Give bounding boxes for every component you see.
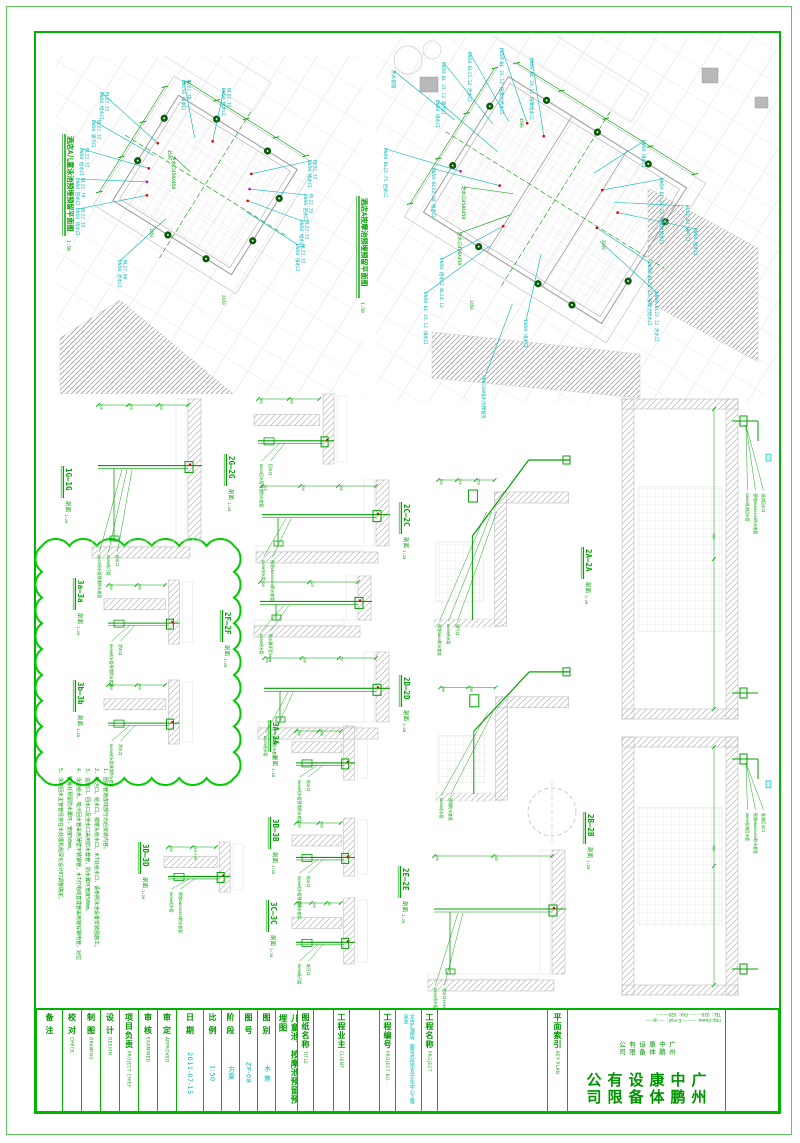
svg-text:DN50 BL23.12 按摩池给水口: DN50 BL23.12 按摩池给水口 — [646, 262, 653, 326]
field-sublabel: EXAMINED — [146, 1037, 151, 1062]
svg-text:300: 300 — [259, 398, 263, 404]
svg-text:剖面: 剖面 — [227, 489, 235, 501]
svg-text:3A—3A: 3A—3A — [271, 722, 280, 745]
svg-text:400: 400 — [137, 584, 141, 590]
svg-text:1:20: 1:20 — [269, 948, 274, 958]
svg-text:785: 785 — [712, 845, 716, 851]
svg-text:溢流回水口: 溢流回水口 — [761, 493, 766, 512]
section-title: 3a—3a剖面1:20 — [73, 578, 85, 636]
svg-text:剖面: 剖面 — [402, 710, 410, 722]
svg-text:2F—2F: 2F—2F — [223, 612, 232, 635]
empty-cell — [314, 1010, 334, 1111]
svg-text:220: 220 — [99, 404, 103, 410]
svg-text:4500: 4500 — [167, 150, 172, 160]
svg-text:950: 950 — [477, 479, 481, 485]
svg-text:DN50 BL22.75 回水口: DN50 BL22.75 回水口 — [382, 148, 389, 198]
field-value: ZP-08 — [245, 1062, 253, 1083]
field-label: 平面索引 — [552, 1013, 563, 1049]
svg-text:DN50 给水口: DN50 给水口 — [692, 228, 699, 256]
field-label: 工程名称 — [424, 1013, 435, 1049]
svg-text:剖面: 剖面 — [269, 935, 277, 947]
field-label: 制 图 — [86, 1013, 97, 1035]
company-cell: http://www.············ E-mail：······@··… — [568, 1010, 726, 1111]
field-cell: 工程业主CLIENT — [334, 1010, 350, 1111]
svg-text:3B—3B: 3B—3B — [271, 819, 280, 842]
field-sublabel: KEY PLAN — [555, 1051, 560, 1074]
svg-text:给水口: 给水口 — [306, 876, 311, 888]
svg-text:150: 150 — [297, 822, 301, 828]
section-title: 1G—1G剖面1:20 — [61, 466, 73, 524]
svg-text:DN50溢流回水管: DN50溢流回水管 — [745, 813, 750, 841]
field-label: 审 核 — [143, 1013, 154, 1035]
title-block: 备 注校 对CHECK制 图DRAWING设 计DESIGN项目负责PROJEC… — [35, 1008, 780, 1113]
svg-text:预埋DN80X450防水套管: 预埋DN80X450防水套管 — [753, 493, 758, 534]
svg-text:1450: 1450 — [469, 300, 474, 310]
svg-text:泄水口: 泄水口 — [118, 744, 123, 756]
svg-text:5. 泳池回水主管管径将在水处理机组深化设计时调整确定。: 5. 泳池回水主管管径将在水处理机组深化设计时调整确定。 — [57, 768, 64, 902]
field-cell: 比 例1:50 — [204, 1010, 222, 1111]
svg-text:剖面: 剖面 — [64, 501, 72, 513]
svg-text:3. 溢流口、回水口及泄水口采用防水套管，防水翼环宽度50m: 3. 溢流口、回水口及泄水口采用防水套管，防水翼环宽度50mm。 — [84, 768, 91, 914]
svg-text:1:20: 1:20 — [271, 865, 276, 875]
svg-text:400: 400 — [137, 684, 141, 690]
svg-text:预埋DN80X450防水套管: 预埋DN80X450防水套管 — [178, 892, 183, 933]
field-sublabel: TITLE — [303, 1051, 308, 1064]
field-cell: 阶 段方案 — [222, 1010, 240, 1111]
svg-text:2B—2B: 2B—2B — [586, 814, 595, 837]
section-title: 2A—2A剖面1:20 — [581, 547, 593, 605]
svg-text:50: 50 — [327, 902, 331, 906]
field-value: 方案 — [226, 1066, 236, 1080]
field-sublabel: PROJECT NO. — [385, 1051, 390, 1082]
svg-text:1:20: 1:20 — [227, 502, 232, 512]
field-sublabel: APPROVED — [165, 1037, 170, 1063]
svg-text:预埋DN80X450防水套管: 预埋DN80X450防水套管 — [753, 813, 758, 854]
svg-text:4. 泳池给水、吸污回水管采用薄壁不锈钢管，水T灯电线直埋管: 4. 泳池给水、吸污回水管采用薄壁不锈钢管，水T灯电线直埋管采用镀锌钢电管，对拉 — [75, 768, 82, 960]
field-cell: 备 注 — [37, 1010, 63, 1111]
field-label: 图纸名称 — [300, 1013, 311, 1049]
svg-text:250: 250 — [129, 404, 133, 410]
svg-text:300: 300 — [265, 657, 269, 663]
svg-text:400: 400 — [319, 730, 323, 736]
svg-text:300: 300 — [439, 479, 443, 485]
svg-text:3D—3D: 3D—3D — [141, 844, 150, 867]
section-title: 2B—2B剖面1:20 — [583, 812, 595, 870]
svg-text:DN150排水沟预留孔: DN150排水沟预留孔 — [480, 378, 487, 420]
svg-text:DN50 BL23.10 给水口: DN50 BL23.10 给水口 — [430, 168, 437, 218]
svg-text:1:20: 1:20 — [64, 514, 69, 524]
svg-text:300: 300 — [109, 684, 113, 690]
svg-text:300: 300 — [261, 581, 265, 587]
svg-text:DN50 排水口: DN50 排水口 — [640, 140, 647, 168]
section-title: 3b—3b剖面1:20 — [73, 680, 85, 738]
svg-text:DN50 BL 23.12 按摩给水口: DN50 BL 23.12 按摩给水口 — [528, 58, 535, 120]
section-2F—2F: 300120DN50给水管防水翼环宽50mm2F—2F剖面1:20 — [220, 576, 372, 668]
section-2G—2G: 300100DN25回水管预埋防水套管回水口2G—2G剖面1:20 — [224, 394, 347, 512]
svg-text:400: 400 — [169, 846, 173, 852]
svg-text:100: 100 — [312, 902, 316, 908]
svg-text:BL22.32: BL22.32 — [104, 92, 110, 112]
field-value: 1:50 — [209, 1065, 217, 1082]
svg-text:DN50 BL 23.12 吸污口: DN50 BL 23.12 吸污口 — [440, 62, 447, 115]
svg-text:BL22.32: BL22.32 — [226, 88, 232, 108]
svg-text:泄水口450X450: 泄水口450X450 — [456, 232, 463, 265]
svg-text:200: 200 — [435, 855, 439, 861]
svg-text:2G—2G: 2G—2G — [227, 456, 236, 479]
svg-text:2050: 2050 — [601, 240, 606, 250]
svg-text:1450: 1450 — [149, 228, 154, 238]
svg-text:溢流回水口: 溢流回水口 — [761, 813, 766, 832]
field-value: 2011-07-15 — [186, 1052, 194, 1095]
svg-text:120: 120 — [310, 581, 314, 587]
field-cell: 图 号ZP-08 — [240, 1010, 258, 1111]
svg-text:300: 300 — [109, 584, 113, 590]
section-2C—2C: 750100100DN50排水管预埋DN80X450防水套管2C—2C剖面1:2… — [256, 480, 411, 601]
section-title: 3B—3B剖面1:20 — [268, 817, 280, 875]
keyplan-box — [438, 1010, 548, 1111]
svg-text:DN50给水管预埋防水套管: DN50给水管预埋防水套管 — [297, 876, 302, 920]
field-label: 设 计 — [105, 1013, 116, 1035]
svg-text:泄水口: 泄水口 — [118, 644, 123, 656]
svg-text:给水口: 给水口 — [115, 555, 120, 567]
svg-text:1:20: 1:20 — [223, 658, 228, 668]
company-contact: http://www.············ E-mail：······@··… — [570, 1010, 723, 1025]
svg-text:785: 785 — [712, 533, 716, 539]
svg-text:BL22.32: BL22.32 — [300, 244, 306, 264]
svg-text:BL22.32: BL22.32 — [84, 148, 90, 168]
section-detail: 300200DN50给水管预埋防水套管 — [436, 668, 570, 821]
svg-text:300: 300 — [297, 902, 301, 908]
svg-text:1:20: 1:20 — [141, 890, 146, 900]
svg-text:150: 150 — [297, 730, 301, 736]
section-title: 2F—2F剖面1:20 — [220, 610, 232, 668]
section-detail: 785DN50溢流回水管预埋DN80X450防水套管溢流回水口 — [622, 399, 771, 719]
svg-text:150: 150 — [458, 479, 462, 485]
svg-text:1:50: 1:50 — [359, 302, 365, 313]
svg-text:BL22.70: BL22.70 — [80, 178, 86, 198]
svg-text:2E—2E: 2E—2E — [401, 868, 410, 891]
field-cell: 审 定APPROVED — [158, 1010, 177, 1111]
svg-text:100: 100 — [494, 855, 498, 861]
field-label: 工程编号 — [382, 1013, 393, 1049]
svg-text:50: 50 — [340, 657, 344, 661]
cad-linework-canvas: DN50 给水口BL22.32DN150 排水口BL22.30DN50 给水口B… — [0, 0, 800, 1143]
svg-text:2C—2C: 2C—2C — [402, 504, 411, 527]
svg-text:剖面: 剖面 — [141, 877, 149, 889]
svg-text:DN50排水管: DN50排水管 — [433, 988, 438, 1009]
field-sublabel: DRAWING — [89, 1037, 94, 1060]
svg-text:DN50给水管: DN50给水管 — [446, 624, 451, 645]
svg-text:预埋防水套管: 预埋防水套管 — [448, 798, 453, 821]
svg-text:1:20: 1:20 — [76, 626, 81, 636]
svg-text:DN50 排水口: DN50 排水口 — [522, 320, 529, 348]
company-name: 广州中鹏康体设备有限公司 — [584, 1072, 710, 1106]
svg-text:热水管道: 热水管道 — [390, 70, 397, 89]
drawing-sheet: DN50 给水口BL22.32DN150 排水口BL22.30DN50 给水口B… — [0, 0, 800, 1143]
section-title: 3C—3C剖面1:20 — [266, 900, 278, 958]
company-name-small: 广州中鹏康体设备有限公司 — [617, 1041, 677, 1056]
field-sublabel: PROJECT CHIEF — [127, 1051, 132, 1088]
drawing-title-cell: 儿童池、按摩池预留预埋图 — [276, 1010, 298, 1111]
svg-text:100: 100 — [290, 398, 294, 404]
project-name-text: 太古汇酒店、服务式住宅及文化中心工程泳池 — [402, 1014, 415, 1107]
svg-text:回水口: 回水口 — [268, 464, 273, 476]
svg-text:剖面: 剖面 — [401, 901, 409, 913]
svg-text:剖面: 剖面 — [76, 715, 84, 727]
general-notes: 1. 图中管道虚线部分为后安装内容。2. 吸污口、给水口、按摩头给水口、水T处给… — [57, 768, 109, 960]
svg-text:DN50排水管: DN50排水管 — [261, 560, 266, 581]
field-cell: 设 计DESIGN — [101, 1010, 120, 1111]
svg-text:2D—2D: 2D—2D — [402, 677, 411, 700]
section-title: 2C—2C剖面1:20 — [399, 502, 411, 560]
field-cell: 图 别水 施 — [258, 1010, 276, 1111]
svg-text:剖面: 剖面 — [271, 852, 279, 864]
field-label: 审 定 — [162, 1013, 173, 1035]
project-name-cell: 太古汇酒店、服务式住宅及文化中心工程泳池 — [396, 1010, 422, 1111]
svg-text:DN50 BL23.12 泄水口: DN50 BL23.12 泄水口 — [653, 292, 660, 342]
section-title: 2E—2E剖面1:20 — [398, 866, 410, 924]
field-label: 备 注 — [44, 1013, 55, 1035]
svg-text:预埋DN80X450防水套管: 预埋DN80X450防水套管 — [270, 560, 275, 601]
svg-text:DN50给水管: DN50给水管 — [259, 634, 264, 655]
section-2B—2B: 785DN50溢流回水管预埋DN80X450防水套管溢流回水口2B—2B剖面1:… — [583, 737, 771, 995]
field-cell: 工程名称PROJECT — [422, 1010, 438, 1111]
svg-text:1:20: 1:20 — [76, 728, 81, 738]
svg-text:DN50吸污管: DN50吸污管 — [106, 555, 111, 576]
svg-text:1:20: 1:20 — [401, 914, 406, 924]
empty-cell — [350, 1010, 380, 1111]
svg-text:BL21.67 通气口: BL21.67 通气口 — [684, 205, 691, 241]
field-sublabel: CHECK — [70, 1037, 75, 1053]
svg-text:100: 100 — [301, 485, 305, 491]
svg-text:1G—1G: 1G—1G — [64, 468, 73, 491]
svg-text:酒店A按摩池预埋预留平面图: 酒店A按摩池预埋预留平面图 — [360, 198, 369, 286]
field-label: 比 例 — [207, 1013, 218, 1035]
section-3D—3D: 400250~100DN50给水管预埋DN80X450防水套管3D—3D剖面1:… — [138, 842, 243, 933]
field-label: 日 期 — [185, 1013, 196, 1035]
svg-text:泄水口450X450: 泄水口450X450 — [170, 156, 177, 189]
svg-text:1. 图中管道虚线部分为后安装内容。: 1. 图中管道虚线部分为后安装内容。 — [102, 768, 109, 852]
svg-text:泄水口450X450: 泄水口450X450 — [460, 186, 467, 219]
svg-text:3C—3C: 3C—3C — [269, 902, 278, 925]
section-3C—3C: 30010050DN50吸污管吸污口3C—3C剖面1:20 — [266, 898, 367, 985]
field-label: 校 对 — [67, 1013, 78, 1035]
svg-text:BL22.35: BL22.35 — [308, 194, 314, 214]
field-sublabel: DESIGN — [108, 1037, 113, 1055]
svg-text:1:20: 1:20 — [584, 595, 589, 605]
svg-text:剖面: 剖面 — [402, 537, 410, 549]
section-title: 2G—2G剖面1:20 — [224, 454, 236, 512]
field-value: 水 施 — [262, 1065, 272, 1082]
field-sublabel: CLIENT — [339, 1051, 344, 1068]
svg-text:DN50给水管预埋防水套管: DN50给水管预埋防水套管 — [109, 744, 114, 788]
section-2E—2E: 200100DN50排水管泄水口450X4502E—2E剖面1:20 — [398, 850, 566, 1016]
field-cell: 校 对CHECK — [63, 1010, 82, 1111]
svg-text:DN50给水管: DN50给水管 — [169, 892, 174, 913]
svg-text:4500: 4500 — [519, 118, 524, 128]
svg-text:剖面: 剖面 — [586, 847, 594, 859]
svg-text:剖面: 剖面 — [223, 645, 231, 657]
svg-text:1:20: 1:20 — [271, 768, 276, 778]
svg-text:BL22.30: BL22.30 — [186, 80, 192, 100]
field-sublabel: PROJECT — [427, 1051, 432, 1072]
svg-text:BL22.60: BL22.60 — [122, 260, 128, 280]
svg-text:1:20: 1:20 — [586, 860, 591, 870]
svg-text:1:20: 1:20 — [402, 723, 407, 733]
svg-text:2. 吸污口、给水口、按摩头给水口、水T处给水口，请参照泳池: 2. 吸污口、给水口、按摩头给水口、水T处给水口，请参照泳池设备安装图施工。 — [93, 768, 100, 950]
svg-text:3a—3a: 3a—3a — [76, 580, 85, 603]
section-1G—1G: 220250300DN25给水管预埋防水套管DN50吸污管给水口1G—1G剖面1… — [61, 399, 202, 599]
field-label: 项目负责 — [124, 1013, 135, 1049]
plan-title: 酒店A按摩池预埋预留平面图1:50 — [356, 196, 369, 313]
svg-text:300: 300 — [441, 686, 445, 692]
svg-text:剖面: 剖面 — [584, 582, 592, 594]
field-label: 图 别 — [261, 1013, 272, 1035]
svg-text:300: 300 — [159, 404, 163, 410]
field-cell: 审 核EXAMINED — [139, 1010, 158, 1111]
svg-text:DN50给水管预埋防水套管: DN50给水管预埋防水套管 — [109, 644, 114, 688]
svg-text:给水口: 给水口 — [306, 780, 311, 792]
section-3b—3b: 300400DN50给水管预埋防水套管泄水口3b—3b剖面1:20 — [73, 680, 192, 788]
svg-text:BL22.32: BL22.32 — [80, 208, 86, 228]
svg-text:BL22.32: BL22.32 — [304, 220, 310, 240]
field-cell: 项目负责PROJECT CHIEF — [120, 1010, 139, 1111]
svg-text:750: 750 — [263, 485, 267, 491]
svg-text:吸污口: 吸污口 — [306, 964, 311, 976]
svg-text:DN50 排水口: DN50 排水口 — [434, 100, 441, 128]
svg-text:DN25给水管预埋防水套管: DN25给水管预埋防水套管 — [97, 555, 102, 599]
section-title: 2D—2D剖面1:20 — [399, 675, 411, 733]
svg-text:BL22.32: BL22.32 — [312, 160, 318, 180]
svg-text:剖面: 剖面 — [76, 613, 84, 625]
svg-text:1:50: 1:50 — [65, 240, 71, 251]
empty-cell — [726, 1010, 782, 1111]
svg-text:管每处预留防水翼环，宽度50mm。: 管每处预留防水翼环，宽度50mm。 — [66, 776, 73, 853]
svg-text:DN50给水管预埋防水套管: DN50给水管预埋防水套管 — [297, 780, 302, 824]
field-cell: 工程编号PROJECT NO. — [380, 1010, 396, 1111]
field-cell: 平面索引KEY PLAN — [548, 1010, 568, 1111]
svg-text:DN50溢流回水管: DN50溢流回水管 — [745, 493, 750, 521]
field-label: 阶 段 — [225, 1013, 236, 1035]
svg-text:250~100: 250~100 — [193, 846, 197, 860]
field-cell: 制 图DRAWING — [82, 1010, 101, 1111]
svg-text:DN50 BL 23.12 按摩池给水口: DN50 BL 23.12 按摩池给水口 — [658, 178, 665, 245]
svg-text:3b—3b: 3b—3b — [76, 682, 85, 705]
svg-text:100: 100 — [302, 657, 306, 663]
svg-text:2470: 2470 — [221, 295, 226, 305]
svg-text:100: 100 — [339, 485, 343, 491]
field-cell: 日 期2011-07-15 — [177, 1010, 204, 1111]
svg-text:BL22.32: BL22.32 — [96, 120, 102, 140]
field-cell: 图纸名称TITLE — [298, 1010, 314, 1111]
svg-text:1:20: 1:20 — [402, 550, 407, 560]
revision-cloud — [35, 539, 240, 785]
svg-text:酒店A儿童泳池预埋预留平面图: 酒店A儿童泳池预埋预留平面图 — [66, 136, 75, 231]
svg-text:DN50给水管: DN50给水管 — [439, 798, 444, 819]
field-label: 图 号 — [243, 1013, 254, 1035]
svg-text:DN50吸污管: DN50吸污管 — [297, 964, 302, 985]
svg-text:200: 200 — [469, 686, 473, 692]
section-3a—3a: 300400DN50给水管预埋防水套管泄水口3a—3a剖面1:20 — [73, 578, 192, 688]
svg-text:通气口: 通气口 — [455, 624, 460, 636]
svg-text:预埋DN80防水套管: 预埋DN80防水套管 — [437, 624, 442, 656]
section-2A—2A: 300150950预埋DN80防水套管DN50给水管通气口2A—2A剖面1:20 — [434, 456, 593, 656]
field-label: 工程业主 — [336, 1013, 347, 1049]
svg-text:剖面: 剖面 — [271, 755, 279, 767]
section-title: 3D—3D剖面1:20 — [138, 842, 150, 900]
svg-text:400: 400 — [319, 822, 323, 828]
svg-text:DN25给水管: DN25给水管 — [263, 736, 268, 757]
svg-text:2A—2A: 2A—2A — [584, 549, 593, 572]
drawing-title-text: 儿童池、按摩池预留预埋图 — [276, 1014, 298, 1107]
svg-text:DN50 BC 23.12 排水口: DN50 BC 23.12 排水口 — [422, 292, 429, 345]
